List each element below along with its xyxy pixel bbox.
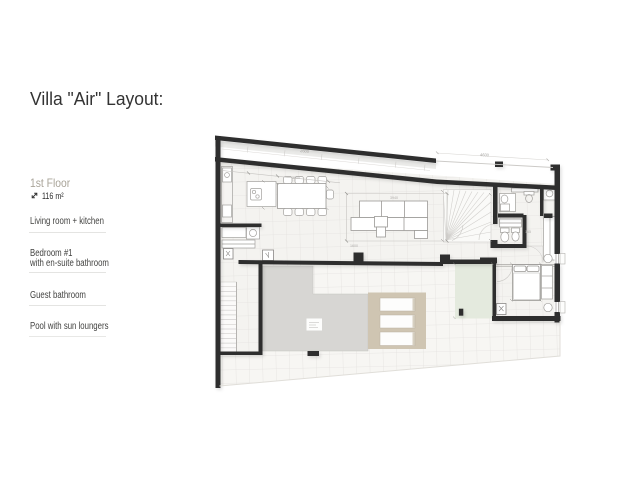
svg-text:2600: 2600 xyxy=(300,148,310,154)
svg-text:3000: 3000 xyxy=(292,176,300,180)
svg-text:1600: 1600 xyxy=(350,244,358,248)
svg-text:4600: 4600 xyxy=(480,152,490,158)
svg-text:3940: 3940 xyxy=(390,196,398,200)
svg-text:165: 165 xyxy=(525,230,531,234)
